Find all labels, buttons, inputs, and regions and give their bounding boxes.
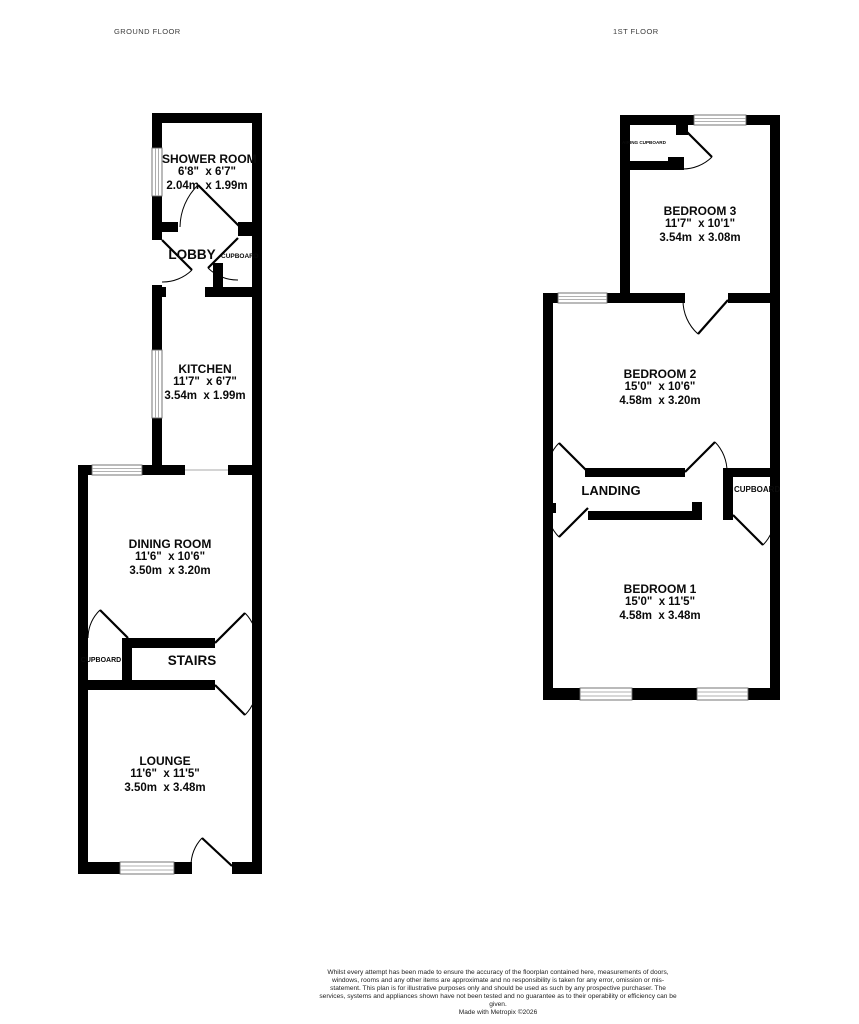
window bbox=[694, 115, 746, 125]
room-label-landing-cupboard: CUPBOARD bbox=[734, 485, 780, 494]
disclaimer-text: Whilst every attempt has been made to en… bbox=[317, 969, 679, 1009]
window bbox=[152, 148, 162, 196]
room-label-landing: LANDING bbox=[577, 483, 645, 498]
door-front bbox=[191, 838, 232, 866]
credit-text: Made with Metropix ©2026 bbox=[317, 1009, 679, 1017]
room-label-kitchen: KITCHEN 11'7" x 6'7" 3.54m x 1.99m bbox=[159, 362, 251, 403]
room-label-stairs: STAIRS bbox=[158, 653, 226, 668]
room-label-shower-room: SHOWER ROOM 6'8" x 6'7" 2.04m x 1.99m bbox=[162, 152, 252, 193]
door-bedroom-3 bbox=[683, 300, 728, 334]
floorplan-drawing bbox=[0, 0, 859, 1024]
room-label-airing-cupboard: AIRING CUPBOARD bbox=[622, 140, 672, 145]
room-label-lobby-cupboard: CUPBOARD bbox=[221, 253, 261, 260]
window bbox=[697, 688, 748, 700]
door-landing-cupboard bbox=[733, 515, 775, 545]
window bbox=[92, 465, 142, 475]
window bbox=[120, 862, 174, 874]
room-label-bedroom-1: BEDROOM 1 15'0" x 11'5" 4.58m x 3.48m bbox=[585, 582, 735, 623]
room-label-stairs-cupboard: CUPBOARD bbox=[74, 657, 128, 664]
room-label-bedroom-2: BEDROOM 2 15'0" x 10'6" 4.58m x 3.20m bbox=[585, 367, 735, 408]
door-lounge-passage bbox=[215, 685, 257, 715]
room-label-lounge: LOUNGE 11'6" x 11'5" 3.50m x 3.48m bbox=[90, 754, 240, 795]
room-label-dining-room: DINING ROOM 11'6" x 10'6" 3.50m x 3.20m bbox=[95, 537, 245, 578]
window bbox=[558, 293, 607, 303]
window bbox=[580, 688, 632, 700]
door-bedroom-2 bbox=[685, 442, 727, 472]
door-stairs-cupboard bbox=[88, 610, 128, 638]
room-label-bedroom-3: BEDROOM 3 11'7" x 10'1" 3.54m x 3.08m bbox=[625, 204, 775, 245]
door-dining-passage bbox=[215, 613, 257, 643]
footer: Whilst every attempt has been made to en… bbox=[317, 969, 679, 1017]
stairs-arc-upper bbox=[547, 443, 588, 472]
room-label-lobby: LOBBY bbox=[161, 247, 223, 262]
floorplan-page: GROUND FLOOR 1ST FLOOR bbox=[0, 0, 859, 1024]
